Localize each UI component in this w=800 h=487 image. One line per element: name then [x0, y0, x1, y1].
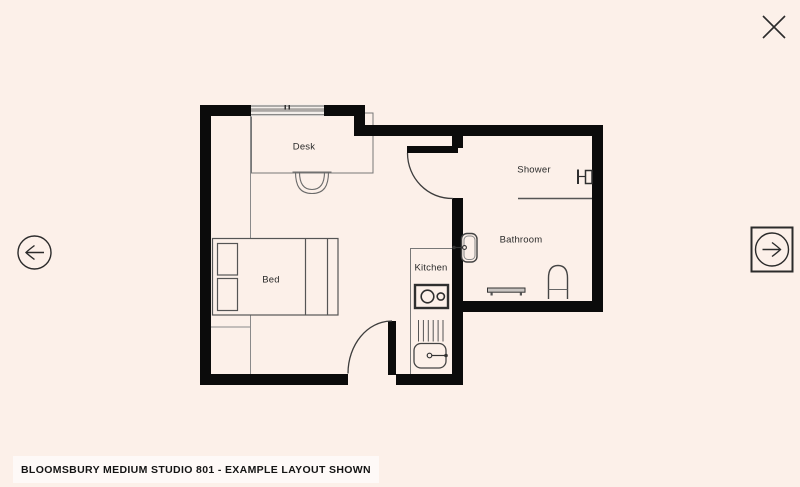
room-label-kitchen: Kitchen	[414, 263, 447, 274]
room-label-bed: Bed	[262, 275, 280, 286]
window-symbol	[251, 105, 324, 117]
room-label-shower: Shower	[517, 165, 550, 176]
floorplan: Desk Bed Kitchen Shower Bathroom	[0, 0, 800, 487]
room-label-desk: Desk	[293, 142, 315, 153]
entrance-door	[348, 321, 396, 375]
caption-badge: BLOOMSBURY MEDIUM STUDIO 801 - EXAMPLE L…	[13, 456, 379, 483]
shower-head-icon	[578, 170, 592, 185]
room-label-bathroom: Bathroom	[500, 235, 543, 246]
desk-chair-symbol	[293, 172, 332, 194]
hob-symbol	[415, 285, 448, 308]
drainer-symbol	[419, 320, 444, 342]
caption-text: BLOOMSBURY MEDIUM STUDIO 801 - EXAMPLE L…	[21, 464, 371, 476]
toilet-symbol	[549, 266, 568, 300]
sink-symbol	[414, 344, 448, 369]
bathroom-door	[407, 146, 458, 199]
radiator-symbol	[488, 288, 526, 296]
floorplan-viewer: Desk Bed Kitchen Shower Bathroom BLOOMSB…	[0, 0, 800, 487]
